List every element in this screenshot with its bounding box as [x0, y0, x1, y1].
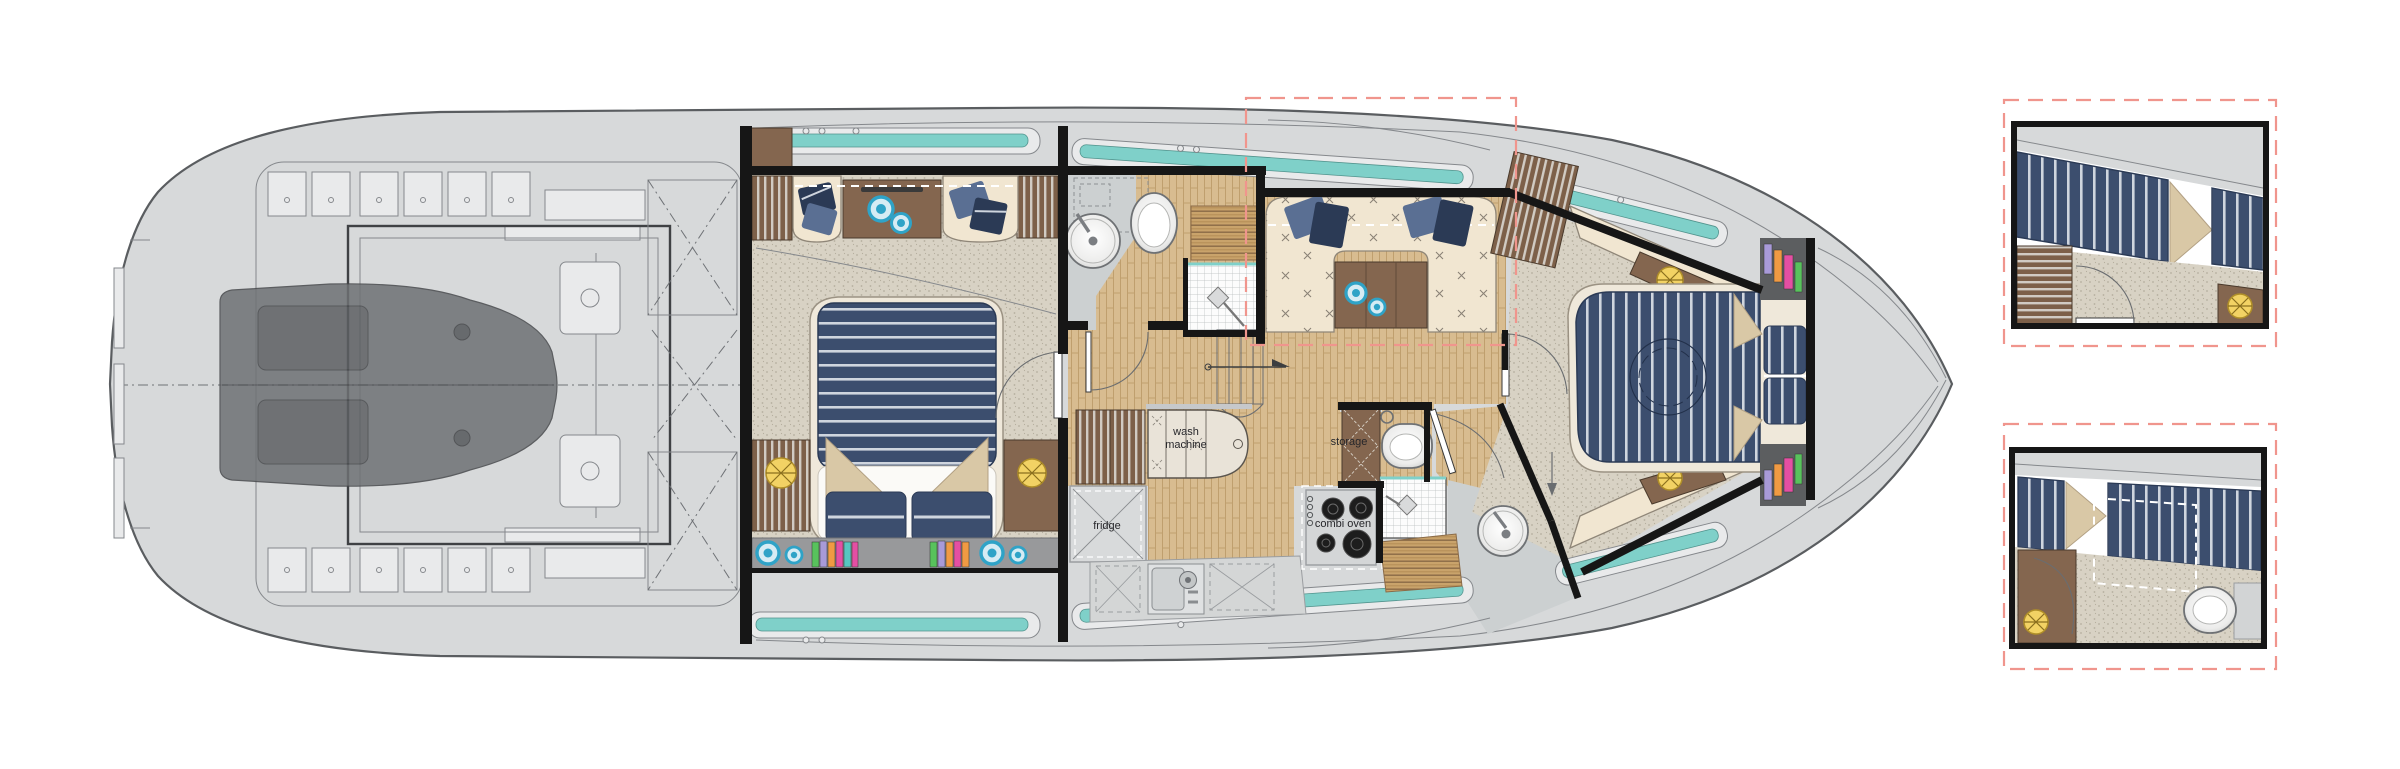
bow-bed — [1568, 284, 1808, 472]
day-head-sink — [1478, 506, 1528, 556]
floorplan-drawing: wash machine storage fridge combi oven — [0, 0, 2400, 769]
label-storage: storage — [1331, 436, 1368, 448]
side-plank-bottom-1 — [748, 612, 1040, 643]
bulkhead — [740, 126, 752, 644]
shelf-decor-blue-1 — [757, 542, 779, 564]
day-head-teak — [1380, 534, 1462, 592]
dinette-table — [1335, 262, 1427, 328]
bed-pillow-right — [912, 492, 992, 542]
burner — [1322, 498, 1344, 520]
washer-counter-edge — [1146, 404, 1252, 409]
inset-a-wardrobe — [2017, 246, 2072, 324]
shelf-decor-blue-4 — [1010, 547, 1026, 563]
table-decor-blue-2 — [1369, 299, 1385, 315]
bathroom-sink — [1066, 214, 1120, 268]
burner — [1350, 497, 1373, 520]
bed-pillow-left — [826, 492, 906, 542]
shower-master — [1187, 264, 1257, 334]
burner — [1317, 534, 1335, 552]
bow-bed-mattress — [1576, 292, 1760, 462]
yacht-floorplan: wash machine storage fridge combi oven — [0, 0, 2400, 769]
inset-b-berth-main — [2108, 483, 2261, 571]
burner — [1343, 530, 1371, 558]
day-head-shower — [1380, 478, 1446, 538]
label-wash-machine-line1: wash — [1172, 426, 1199, 438]
inset-b-stool — [2024, 610, 2048, 634]
bow-head-cushion-2 — [1764, 378, 1806, 424]
label-wash-machine-line2: machine — [1165, 439, 1207, 451]
bed-mattress — [818, 303, 996, 469]
desk-decor-blue-1 — [869, 197, 893, 221]
bow-bookshelf-bottom — [1760, 444, 1806, 506]
inset-a-berth-right — [2212, 188, 2263, 270]
bookshelf-band — [752, 538, 1060, 569]
stool-master-right — [1018, 459, 1046, 487]
label-combi-oven: combi oven — [1315, 518, 1371, 530]
shelf-decor-blue-3 — [981, 542, 1003, 564]
wardrobe-top-right — [1017, 176, 1058, 238]
table-decor-blue-1 — [1346, 283, 1366, 303]
corner-cabinet-top-left — [750, 128, 792, 170]
engines — [220, 284, 557, 486]
inset-a-stool — [2228, 294, 2252, 318]
stool-master-left — [766, 458, 796, 488]
inset-b-berth-left — [2018, 477, 2064, 552]
inset-cabin-top — [2004, 100, 2276, 346]
books-right — [930, 541, 969, 567]
galley-sink — [1148, 564, 1204, 614]
master-bed — [810, 297, 1003, 552]
bow-bookshelf-top — [1760, 238, 1806, 300]
bow-head-cushion-1 — [1764, 326, 1806, 374]
desk-decor-blue-2 — [892, 214, 911, 233]
bathroom-toilet — [1131, 193, 1177, 253]
wardrobe-top-left — [752, 176, 792, 240]
books-left — [812, 541, 858, 567]
inset-cabin-bottom — [2004, 424, 2276, 669]
shelf-decor-blue-2 — [786, 547, 802, 563]
label-fridge: fridge — [1093, 520, 1121, 532]
seat-pillows-left — [797, 182, 838, 236]
